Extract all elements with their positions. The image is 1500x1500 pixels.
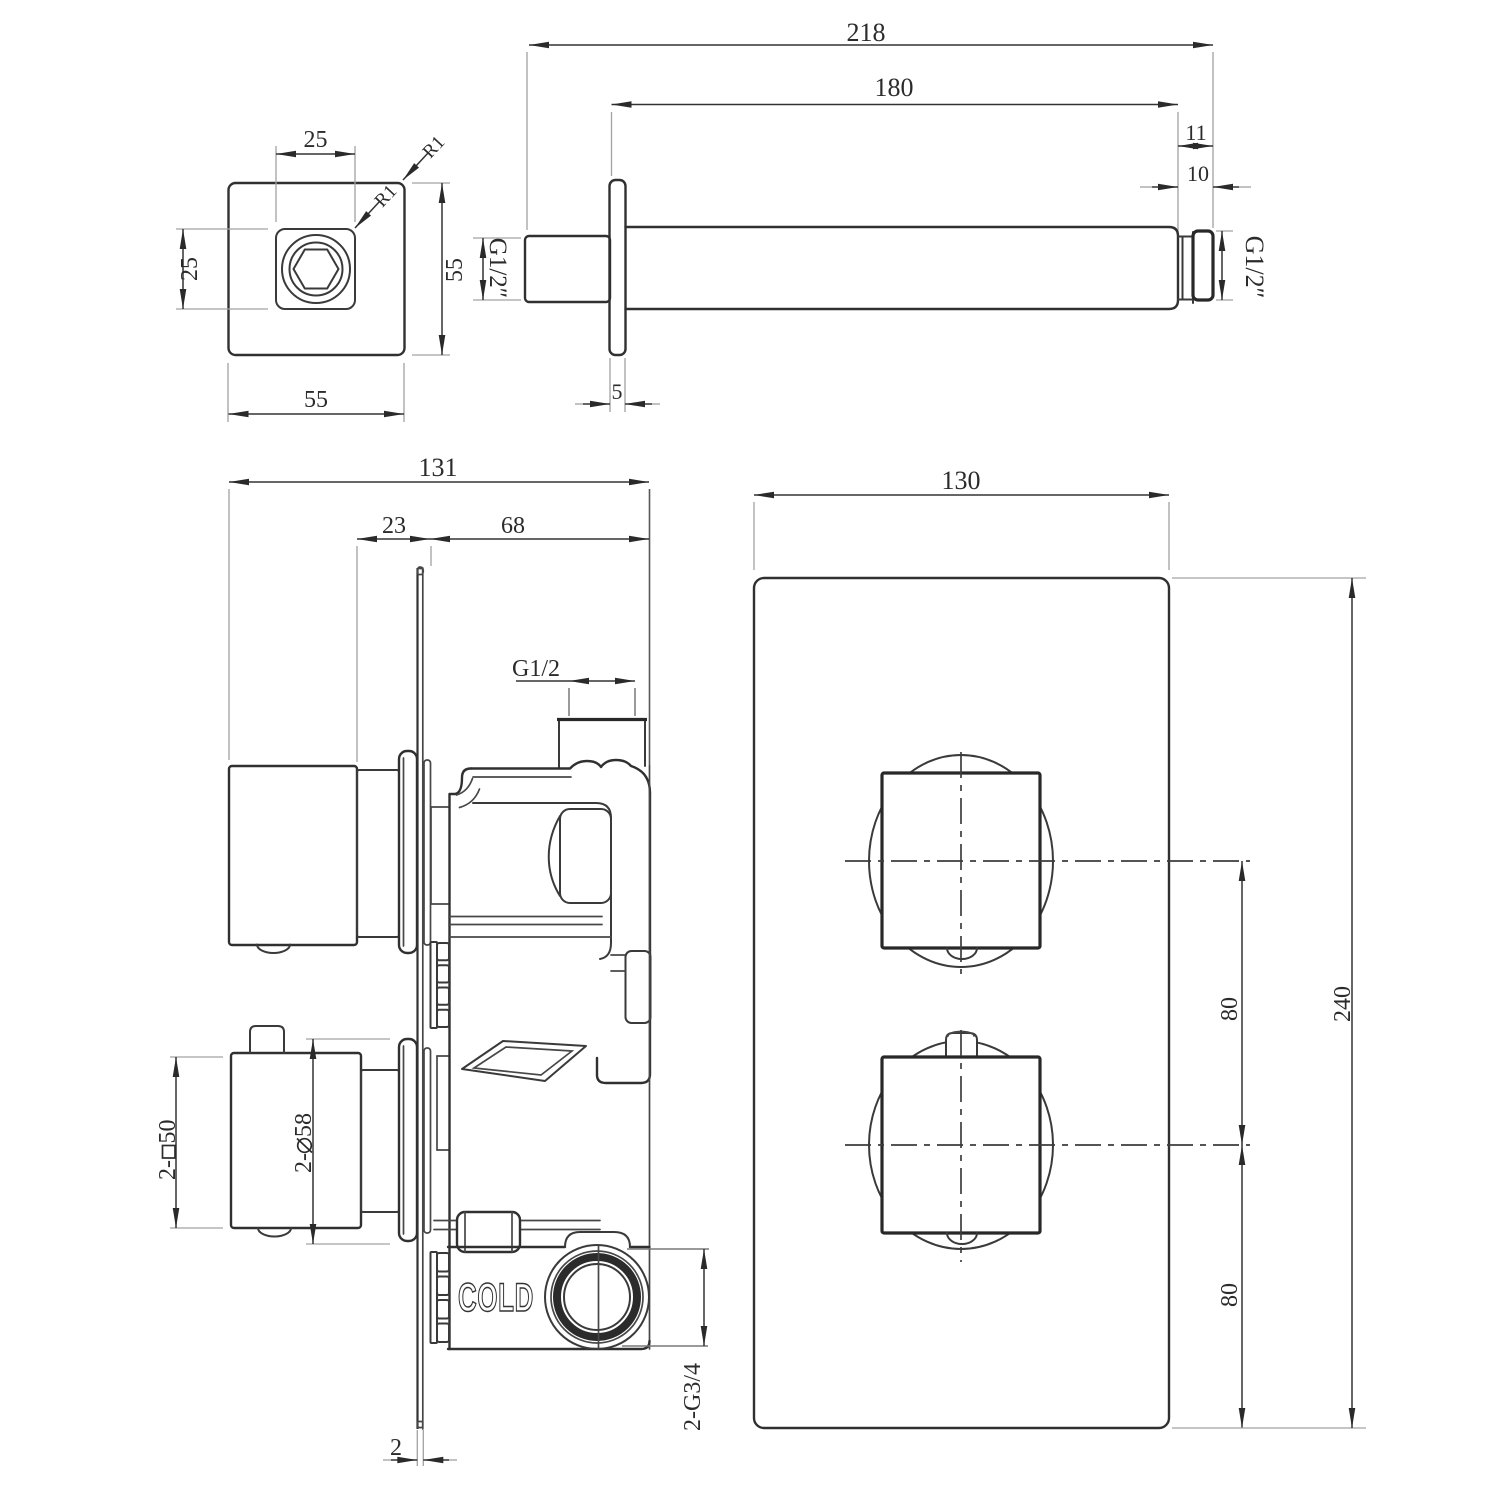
svg-text:240: 240 (1330, 986, 1356, 1022)
svg-text:2: 2 (390, 1435, 402, 1461)
svg-text:68: 68 (501, 513, 525, 539)
svg-text:G1/2″: G1/2″ (484, 238, 511, 298)
svg-text:G1/2″: G1/2″ (1240, 236, 1269, 299)
svg-text:23: 23 (382, 513, 406, 539)
svg-text:5: 5 (612, 379, 623, 404)
svg-text:G1/2: G1/2 (512, 656, 560, 682)
svg-text:10: 10 (1187, 161, 1209, 186)
svg-text:2-: 2- (291, 1153, 317, 1173)
svg-text:218: 218 (847, 18, 886, 47)
svg-text:2-G3/4: 2-G3/4 (680, 1363, 706, 1431)
svg-text:COLD: COLD (458, 1276, 534, 1320)
svg-text:80: 80 (1217, 1283, 1243, 1307)
svg-text:55: 55 (442, 258, 468, 282)
svg-text:180: 180 (875, 73, 914, 102)
svg-text:25: 25 (304, 127, 328, 153)
svg-text:130: 130 (942, 466, 981, 495)
svg-text:25: 25 (177, 257, 203, 281)
svg-text:11: 11 (1185, 120, 1206, 145)
svg-text:2-: 2- (155, 1160, 181, 1180)
svg-text:131: 131 (419, 453, 458, 482)
svg-text:58: 58 (291, 1113, 317, 1137)
svg-text:50: 50 (155, 1120, 181, 1144)
svg-text:80: 80 (1217, 997, 1243, 1021)
svg-text:55: 55 (304, 387, 328, 413)
